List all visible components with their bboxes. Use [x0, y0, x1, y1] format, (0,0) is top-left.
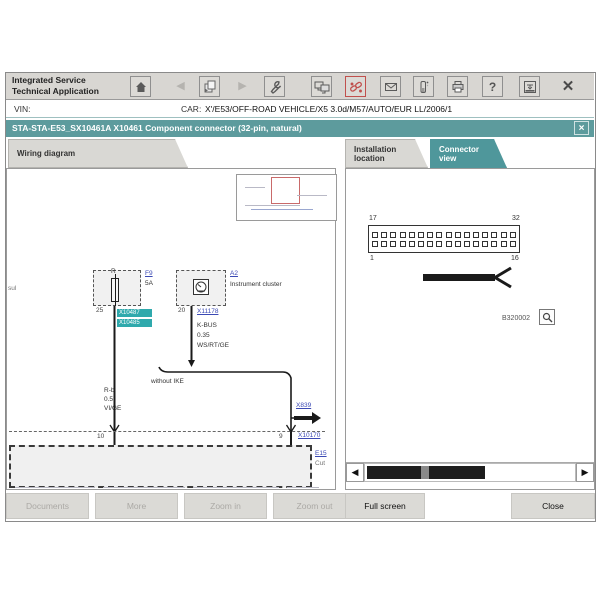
- car-label: CAR:: [181, 104, 201, 114]
- scroll-left-button[interactable]: ◀: [346, 463, 364, 482]
- pin-number-left: 10: [97, 433, 104, 440]
- connector-pin: [427, 232, 433, 238]
- footer-button-more: More: [95, 493, 178, 519]
- connector-pin: [473, 232, 479, 238]
- connector-pin: [473, 241, 479, 247]
- tools-button[interactable]: [264, 76, 285, 97]
- tab-connector-view-label: Connector view: [439, 145, 498, 163]
- connector-side-view: [421, 264, 521, 294]
- magnifier-icon: [542, 312, 553, 323]
- back-icon: ◀: [176, 81, 184, 92]
- connector-pin: [372, 232, 378, 238]
- close-app-icon: ✕: [562, 79, 575, 94]
- footer-button-zoom-in: Zoom in: [184, 493, 267, 519]
- pin-label-1: 1: [370, 255, 374, 262]
- print-button[interactable]: [447, 76, 468, 97]
- connector-face: [368, 225, 520, 253]
- connector-pin: [427, 241, 433, 247]
- connector-pin: [491, 232, 497, 238]
- home-button[interactable]: [130, 76, 151, 97]
- pin-number-right: 9: [279, 433, 283, 440]
- box-note: Cut: [315, 460, 325, 468]
- connector-pin: [482, 241, 488, 247]
- document-close-icon: ×: [579, 123, 585, 134]
- workshop-button[interactable]: [311, 76, 332, 97]
- minimize-icon: [523, 80, 537, 94]
- help-icon: ?: [489, 81, 496, 93]
- component-dashed-box: [9, 445, 312, 488]
- app-title: Integrated Service Technical Application: [12, 75, 132, 96]
- connector-pin: [501, 241, 507, 247]
- mail-button[interactable]: [380, 76, 401, 97]
- connector-pin: [400, 232, 406, 238]
- connector-pin: [482, 232, 488, 238]
- connector-pin: [501, 232, 507, 238]
- close-app-button[interactable]: ✕: [556, 76, 580, 97]
- connector-pin: [455, 241, 461, 247]
- footer-button-full-screen[interactable]: Full screen: [345, 493, 425, 519]
- connector-pin: [381, 241, 387, 247]
- connector-pin: [400, 241, 406, 247]
- measuring-device-button[interactable]: [413, 76, 434, 97]
- app-title-line1: Integrated Service: [12, 75, 132, 86]
- connector-pin: [464, 241, 470, 247]
- scrollbar-thumb[interactable]: [421, 466, 429, 479]
- pin-label-32: 32: [512, 215, 520, 222]
- monitors-icon: [314, 80, 330, 94]
- wiring-diagram-canvas: [7, 169, 335, 489]
- minimize-button[interactable]: [519, 76, 540, 97]
- wrench-icon: [268, 80, 282, 94]
- connector-pin: [418, 241, 424, 247]
- connector-pin: [491, 241, 497, 247]
- chain-icon: [349, 80, 363, 94]
- home-icon: [134, 80, 148, 94]
- tab-wiring-diagram-label: Wiring diagram: [17, 149, 75, 158]
- horizontal-scrollbar: ◀ ▶: [346, 462, 594, 482]
- app-title-line2: Technical Application: [12, 86, 132, 97]
- connector-pin-grid: [372, 232, 516, 247]
- connector-pin: [409, 232, 415, 238]
- hotline-button[interactable]: [345, 76, 366, 97]
- magnifier-button[interactable]: [539, 309, 555, 325]
- vin-label: VIN:: [14, 104, 31, 114]
- section-dashed-line: [9, 431, 325, 432]
- cutoff-segment: [193, 487, 279, 488]
- back-button: ◀: [170, 76, 191, 97]
- x839-link[interactable]: X839: [296, 402, 311, 410]
- connector-pin: [390, 232, 396, 238]
- wiring-diagram-panel: sul R F9 5A 25 X10487 X10485 A2 Instrume…: [6, 168, 336, 490]
- pin-label-17: 17: [369, 215, 377, 222]
- connector-view-panel: 17 32 1 16 B320002 ◀ ▶: [345, 168, 595, 490]
- envelope-icon: [384, 80, 398, 94]
- connector-pin: [390, 241, 396, 247]
- connector-pin: [464, 232, 470, 238]
- pin-label-16: 16: [511, 255, 519, 262]
- document-close-button[interactable]: ×: [574, 121, 589, 135]
- connector-pin: [381, 232, 387, 238]
- connector-pin: [510, 232, 516, 238]
- scrollbar-track[interactable]: [364, 463, 576, 482]
- help-button[interactable]: ?: [482, 76, 503, 97]
- document-title: STA-STA-E53_SX10461A X10461 Component co…: [12, 123, 302, 133]
- connector-pin: [455, 232, 461, 238]
- documents-button[interactable]: [199, 76, 220, 97]
- box-ref-link[interactable]: E15: [315, 450, 327, 458]
- measuring-device-icon: [417, 80, 431, 94]
- tab-installation-location-label: Installation location: [354, 145, 419, 163]
- footer-button-close[interactable]: Close: [511, 493, 595, 519]
- scroll-right-button[interactable]: ▶: [576, 463, 594, 482]
- screen: Integrated Service Technical Application…: [0, 0, 600, 600]
- forward-icon: ▶: [238, 81, 246, 92]
- documents-icon: [203, 80, 217, 94]
- printer-icon: [451, 80, 465, 94]
- forward-button: ▶: [232, 76, 253, 97]
- cutoff-segment: [15, 487, 95, 488]
- connector-pin: [446, 241, 452, 247]
- connector-pin: [436, 241, 442, 247]
- footer-button-zoom-out: Zoom out: [273, 493, 356, 519]
- cutoff-segment: [287, 487, 319, 488]
- x10170-link[interactable]: X10170: [298, 432, 320, 440]
- connector-pin: [409, 241, 415, 247]
- connector-pin: [510, 241, 516, 247]
- footer-button-documents: Documents: [6, 493, 89, 519]
- tab-connector-view[interactable]: Connector view: [430, 139, 507, 168]
- cutoff-segment: [103, 487, 185, 488]
- connector-pin: [446, 232, 452, 238]
- tab-wiring-diagram[interactable]: Wiring diagram: [8, 139, 188, 168]
- connector-pin: [418, 232, 424, 238]
- connector-pin: [436, 232, 442, 238]
- connector-pin: [372, 241, 378, 247]
- image-reference-code: B320002: [502, 315, 530, 322]
- tab-installation-location[interactable]: Installation location: [345, 139, 428, 168]
- car-value: X'/E53/OFF-ROAD VEHICLE/X5 3.0d/M57/AUTO…: [205, 104, 452, 114]
